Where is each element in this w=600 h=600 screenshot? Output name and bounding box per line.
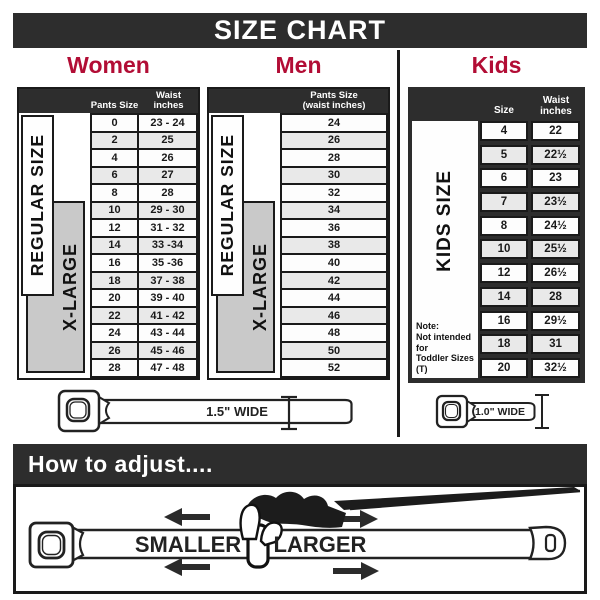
size-cell: 12: [480, 263, 528, 283]
table-row: 723½: [480, 192, 580, 212]
table-row: 52: [280, 358, 388, 378]
kids-label-zone: KIDS SIZE Note: Not intended for Toddler…: [412, 121, 478, 378]
kids-col-waist: Waist inches: [532, 96, 580, 118]
women-col-pants-size: Pants Size: [88, 101, 141, 111]
kids-col-size: Size: [480, 106, 528, 117]
men-regular-box: REGULAR SIZE: [211, 115, 244, 296]
kids-belt-illustration: 1.0" WIDE: [428, 391, 578, 433]
table-row: 824½: [480, 216, 580, 236]
adjust-illustration-box: SMALLER LARGER: [13, 484, 587, 594]
size-cell: 20: [480, 358, 528, 378]
size-cell: 8: [480, 216, 528, 236]
belt-tip: [530, 527, 565, 559]
larger-label: LARGER: [274, 532, 367, 557]
adult-belt-width-label: 1.5" WIDE: [206, 404, 268, 419]
title-bar: SIZE CHART: [13, 13, 587, 48]
table-row: 2847 - 48: [90, 358, 198, 378]
kids-belt-width-label: 1.0" WIDE: [475, 406, 525, 418]
table-row: 1831: [480, 334, 580, 354]
women-col-waist: Waist inches: [141, 91, 196, 112]
waist-cell: 23: [531, 168, 580, 188]
women-table-header: Pants Size Waist inches: [19, 89, 198, 113]
size-cell: 4: [480, 121, 528, 141]
women-regular-label: REGULAR SIZE: [27, 134, 48, 276]
table-row: 422: [480, 121, 580, 141]
waist-cell: 22½: [531, 145, 580, 165]
seatbelt-buckle-icon: [59, 391, 99, 431]
kids-size-label: KIDS SIZE: [434, 170, 456, 272]
size-cell: 6: [480, 168, 528, 188]
waist-cell: 32½: [531, 358, 580, 378]
women-label-zone: X-LARGE REGULAR SIZE: [19, 113, 90, 378]
women-xlarge-label: X-LARGE: [60, 243, 81, 331]
men-col-line2: (waist inches): [280, 101, 388, 111]
how-to-adjust-bar: How to adjust....: [13, 444, 587, 484]
waist-cell: 23½: [531, 192, 580, 212]
size-cell: 14: [480, 287, 528, 307]
arrow-left-icon: [164, 508, 210, 526]
pants-size-cell: 52: [280, 358, 388, 378]
size-chart-graphic: SIZE CHART Women Men Kids Pants Size Wai…: [0, 0, 600, 600]
men-table-body: X-LARGE REGULAR SIZE 2426283032343638404…: [209, 113, 388, 378]
kids-note: Note: Not intended for Toddler Sizes (T): [416, 321, 478, 375]
smaller-label: SMALLER: [135, 532, 241, 557]
table-row: 1629½: [480, 311, 580, 331]
adult-belt-illustration: 1.5" WIDE: [55, 389, 365, 439]
how-to-adjust-heading: How to adjust....: [13, 451, 213, 478]
table-row: 522½: [480, 145, 580, 165]
women-heading: Women: [17, 52, 200, 80]
men-label-zone: X-LARGE REGULAR SIZE: [209, 113, 280, 378]
table-row: 1226½: [480, 263, 580, 283]
men-heading: Men: [207, 52, 390, 80]
men-xlarge-label: X-LARGE: [250, 243, 271, 331]
men-rows: 242628303234363840424446485052: [280, 113, 388, 378]
size-cell: 18: [480, 334, 528, 354]
men-table-header: Pants Size (waist inches): [209, 89, 388, 113]
adjust-illustration: SMALLER LARGER: [16, 487, 584, 591]
women-table-body: X-LARGE REGULAR SIZE 023 - 2422542662782…: [19, 113, 198, 378]
page-title: SIZE CHART: [214, 15, 386, 46]
seatbelt-buckle-icon: [30, 523, 73, 567]
size-cell: 10: [480, 239, 528, 259]
table-row: 1428: [480, 287, 580, 307]
section-divider: [397, 50, 400, 437]
waist-cell: 47 - 48: [137, 358, 198, 378]
arrow-right-icon: [333, 562, 379, 580]
waist-cell: 26½: [531, 263, 580, 283]
kids-heading: Kids: [408, 52, 585, 80]
seatbelt-buckle-icon: [437, 396, 467, 427]
table-row: 623: [480, 168, 580, 188]
women-regular-box: REGULAR SIZE: [21, 115, 54, 296]
pants-size-cell: 28: [90, 358, 139, 378]
women-rows: 023 - 242254266278281029 - 301231 - 3214…: [90, 113, 198, 378]
size-cell: 5: [480, 145, 528, 165]
waist-cell: 22: [531, 121, 580, 141]
waist-cell: 25½: [531, 239, 580, 259]
women-size-table: Pants Size Waist inches X-LARGE REGULAR …: [17, 87, 200, 380]
kids-rows: 422522½623723½824½1025½1226½14281629½183…: [480, 121, 580, 378]
men-regular-label: REGULAR SIZE: [217, 134, 238, 276]
waist-cell: 28: [531, 287, 580, 307]
size-cell: 16: [480, 311, 528, 331]
table-row: 1025½: [480, 239, 580, 259]
size-cell: 7: [480, 192, 528, 212]
waist-cell: 29½: [531, 311, 580, 331]
waist-cell: 24½: [531, 216, 580, 236]
table-row: 2032½: [480, 358, 580, 378]
width-measure-icon: [535, 395, 549, 428]
arrow-left-icon: [164, 558, 210, 576]
waist-cell: 31: [531, 334, 580, 354]
men-size-table: Pants Size (waist inches) X-LARGE REGULA…: [207, 87, 390, 380]
kids-size-table: Size Waist inches KIDS SIZE Note: Not in…: [408, 87, 585, 383]
